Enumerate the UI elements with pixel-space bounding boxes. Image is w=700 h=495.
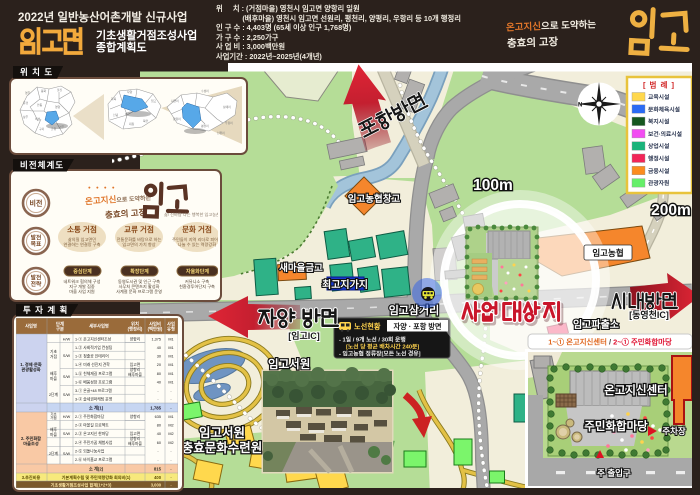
svg-text:양항리: 양항리: [130, 436, 140, 441]
svg-text:주민화합마당: 주민화합마당: [584, 419, 648, 433]
svg-text:봉화: 봉화: [41, 89, 47, 93]
svg-text:1-② 사회적기업 컨설팅: 1-② 사회적기업 컨설팅: [75, 345, 113, 350]
svg-text:배후마을: 배후마을: [128, 372, 142, 377]
svg-text:M1: M1: [168, 415, 173, 419]
svg-text:-: -: [157, 458, 159, 462]
svg-text:635: 635: [155, 415, 161, 419]
svg-text:배후: 배후: [50, 371, 57, 376]
svg-text:임고서원: 임고서원: [268, 357, 310, 371]
svg-text:문화 거점: 문화 거점: [182, 224, 212, 234]
svg-text:자양 · 포항 방면: 자양 · 포항 방면: [393, 322, 441, 331]
svg-text:양항리: 양항리: [173, 117, 181, 121]
svg-text:-: -: [157, 449, 159, 453]
svg-text:노선현황: 노선현황: [354, 322, 381, 331]
svg-text:기초생활거점조성사업 합계(1+2+3): 기초생활거점조성사업 합계(1+2+3): [51, 481, 112, 487]
svg-text:의성: 의성: [35, 117, 41, 121]
svg-text:M2: M2: [168, 441, 173, 445]
svg-text:S/W: S/W: [63, 432, 71, 436]
svg-text:나눌 수 있는 역량강화: 나눌 수 있는 역량강화: [178, 241, 216, 248]
svg-text:40: 40: [157, 346, 161, 350]
svg-text:소 계(1): 소 계(1): [89, 405, 104, 412]
svg-text:2-③ 온고지신 한마당: 2-③ 온고지신 한마당: [75, 431, 109, 436]
svg-text:H/W: H/W: [63, 338, 71, 342]
svg-text:[노선 당 평균 배차시간 240분]: [노선 당 평균 배차시간 240분]: [346, 343, 419, 351]
svg-text:임고농협창고: 임고농협창고: [348, 193, 401, 205]
svg-text:200m: 200m: [651, 202, 691, 219]
svg-text:815: 815: [154, 467, 162, 472]
svg-text:M1: M1: [168, 380, 173, 384]
svg-text:- 1일 / 9개 노선 / 30회 운행: - 1일 / 9개 노선 / 30회 운행: [339, 336, 406, 344]
svg-text:20: 20: [157, 363, 161, 367]
svg-text:상업시설: 상업시설: [648, 142, 669, 150]
svg-text:충효의 고장: 충효의 고장: [105, 207, 147, 220]
svg-text:1-④ 미래 선진지 견학: 1-④ 미래 선진지 견학: [75, 362, 110, 367]
svg-text:상주: 상주: [23, 115, 29, 119]
svg-text:양항리: 양항리: [130, 414, 140, 419]
svg-text:60: 60: [157, 441, 161, 445]
svg-text:-: -: [170, 449, 172, 453]
svg-text:M2: M2: [168, 432, 173, 436]
svg-text:임고: 임고: [151, 99, 157, 103]
svg-text:3-① 온골+48 프로그램: 3-① 온골+48 프로그램: [75, 388, 112, 393]
svg-text:임고면: 임고면: [130, 362, 141, 367]
svg-text:관광자원: 관광자원: [648, 179, 669, 187]
svg-text:온고지신으로 도약하는: 온고지신으로 도약하는: [85, 192, 152, 207]
svg-text:연결하는 연결망 구축: 연결하는 연결망 구축: [63, 241, 100, 248]
svg-text:영양: 영양: [55, 105, 61, 109]
svg-text:30: 30: [157, 355, 161, 359]
svg-text:사계절 문화 프로그램 운영: 사계절 문화 프로그램 운영: [116, 288, 162, 295]
svg-text:-: -: [157, 389, 159, 393]
svg-text:양항리: 양항리: [130, 367, 140, 372]
svg-text:(백만원): (백만원): [148, 326, 163, 333]
svg-text:임고농협: 임고농협: [592, 248, 623, 258]
svg-text:충효문화수련원: 충효문화수련원: [182, 440, 263, 455]
svg-text:M1: M1: [168, 372, 173, 376]
svg-text:금융시설: 금융시설: [648, 167, 669, 175]
svg-text:배후: 배후: [50, 427, 57, 432]
svg-text:자율화단계: 자율화단계: [186, 268, 209, 275]
svg-text:소 계(2): 소 계(2): [89, 466, 104, 473]
svg-text:M1: M1: [168, 363, 173, 367]
svg-text:주차장: 주차장: [662, 426, 686, 436]
svg-text:복지시설: 복지시설: [648, 118, 669, 126]
svg-text:임고파출소: 임고파출소: [573, 318, 619, 331]
svg-text:M1: M1: [168, 355, 173, 359]
svg-text:유형: 유형: [167, 326, 175, 333]
svg-text:2-④ 주민가꿈 채험사업: 2-④ 주민가꿈 채험사업: [75, 440, 113, 445]
svg-text:양항리: 양항리: [130, 337, 140, 342]
svg-text:1-① 온고지신센터조성: 1-① 온고지신센터조성: [75, 337, 112, 342]
svg-text:사업명: 사업명: [25, 323, 37, 330]
svg-text:군위: 군위: [51, 127, 57, 131]
svg-text:덕연리: 덕연리: [171, 99, 179, 103]
svg-text:-: -: [157, 398, 159, 402]
svg-text:안동: 안동: [37, 103, 43, 107]
svg-text:구미: 구미: [39, 127, 45, 131]
svg-text:중심단계: 중심단계: [73, 268, 92, 275]
svg-text:새마을금고: 새마을금고: [279, 262, 323, 274]
svg-text:배후마을: 배후마을: [128, 441, 142, 446]
svg-text:마을: 마을: [50, 432, 57, 437]
svg-text:거점: 거점: [50, 354, 57, 359]
svg-text:주 출입구: 주 출입구: [597, 468, 631, 478]
svg-text:2단계: 2단계: [49, 451, 59, 456]
svg-text:거점: 거점: [50, 415, 56, 420]
svg-text:S/W: S/W: [63, 375, 71, 379]
svg-text:임고면: 임고면: [130, 431, 141, 436]
svg-text:-: -: [170, 389, 172, 393]
svg-text:80: 80: [157, 424, 161, 428]
svg-text:삼매리: 삼매리: [223, 105, 231, 109]
svg-text:M2: M2: [168, 424, 173, 428]
svg-text:소통 거점: 소통 거점: [67, 224, 97, 234]
svg-text:전략: 전략: [31, 280, 42, 288]
svg-text:교류 거점: 교류 거점: [124, 224, 154, 234]
svg-text:400: 400: [154, 475, 162, 480]
svg-text:80: 80: [157, 372, 161, 376]
svg-text:우항리: 우항리: [225, 121, 233, 125]
svg-text:(행정리): (행정리): [128, 326, 143, 333]
svg-text:문화체육시설: 문화체육시설: [648, 105, 680, 113]
svg-text:수성리: 수성리: [201, 89, 209, 93]
svg-text:삶! 신바람 나는 행복한 임고농촌愛로 디자인: 삶! 신바람 나는 행복한 임고농촌愛로 디자인: [164, 211, 218, 218]
svg-text:관광활성화: 관광활성화: [21, 366, 40, 373]
svg-text:영주: 영주: [25, 91, 31, 95]
svg-text:마을조성: 마을조성: [23, 440, 39, 447]
svg-text:100m: 100m: [473, 177, 513, 194]
svg-text:2-⑤ 되돌나눔사업: 2-⑤ 되돌나눔사업: [75, 448, 105, 453]
svg-text:[임고IC]: [임고IC]: [288, 330, 320, 341]
svg-text:대창: 대창: [129, 122, 135, 126]
svg-text:3,000: 3,000: [151, 482, 162, 487]
svg-text:임고면의 가치 향상: 임고면의 가치 향상: [122, 241, 155, 248]
svg-text:M1: M1: [168, 338, 173, 342]
svg-text:기초: 기초: [50, 349, 57, 354]
svg-text:신녕: 신녕: [113, 113, 119, 117]
svg-text:-: -: [170, 458, 172, 462]
svg-text:1,375: 1,375: [151, 338, 161, 342]
svg-text:화북: 화북: [111, 97, 117, 101]
svg-text:S/W: S/W: [63, 393, 71, 397]
svg-text:-: -: [170, 398, 172, 402]
svg-text:3-② 슬세권마케팅 운영: 3-② 슬세권마케팅 운영: [75, 397, 113, 402]
svg-text:1-⑤ 친체재길 프로그램: 1-⑤ 친체재길 프로그램: [75, 371, 113, 376]
svg-text:마을 사업 지원: 마을 사업 지원: [69, 288, 95, 295]
svg-text:1-⑥ 배움성장 프로그램: 1-⑥ 배움성장 프로그램: [75, 379, 113, 384]
svg-text:친환경투어단지 구축: 친환경투어단지 구축: [179, 283, 215, 290]
svg-text:행정시설: 행정시설: [648, 155, 669, 163]
svg-text:울진: 울진: [57, 88, 63, 92]
svg-text:온고지신센터: 온고지신센터: [604, 383, 667, 397]
svg-text:[동영천IC]: [동영천IC]: [629, 309, 669, 320]
svg-text:임고서원: 임고서원: [199, 425, 245, 440]
svg-text:기본계획수립 및 주민역량강화 회의비(1): 기본계획수립 및 주민역량강화 회의비(1): [62, 474, 131, 480]
svg-text:H/W: H/W: [63, 415, 71, 419]
svg-text:2-② 마을길 프로젝트: 2-② 마을길 프로젝트: [75, 423, 109, 428]
svg-text:2-⑥ 바이홈교 프로그램: 2-⑥ 바이홈교 프로그램: [75, 457, 113, 462]
svg-text:발전: 발전: [31, 274, 42, 282]
svg-text:- 임고농협 정류장[모든 노선 경유]: - 임고농협 정류장[모든 노선 경유]: [339, 350, 421, 358]
svg-text:[ 범 례 ]: [ 범 례 ]: [643, 80, 675, 90]
svg-text:세부사업명: 세부사업명: [89, 323, 109, 330]
svg-text:2-① 주민화합마당: 2-① 주민화합마당: [75, 414, 105, 419]
svg-text:● ● ● ●: ● ● ● ●: [88, 185, 117, 190]
svg-text:북안: 북안: [143, 119, 149, 123]
svg-text:보건·의료시설: 보건·의료시설: [648, 130, 682, 138]
svg-text:구분: 구분: [56, 326, 64, 333]
svg-text:S/W: S/W: [63, 354, 71, 358]
svg-text:M1: M1: [168, 346, 173, 350]
svg-text:목표: 목표: [31, 240, 42, 248]
svg-text:확장단계: 확장단계: [130, 268, 149, 275]
svg-text:2단계: 2단계: [49, 392, 59, 397]
svg-text:S/W: S/W: [63, 452, 71, 456]
svg-text:1~① 온고지신센터 / 2~① 주민화합마당: 1~① 온고지신센터 / 2~① 주민화합마당: [548, 338, 672, 347]
svg-text:1,785: 1,785: [150, 406, 161, 411]
svg-text:경주: 경주: [59, 125, 65, 129]
svg-text:교육시설: 교육시설: [648, 93, 669, 101]
svg-text:40: 40: [157, 380, 161, 384]
svg-text:선원리: 선원리: [217, 131, 225, 135]
svg-text:마을: 마을: [50, 376, 57, 381]
svg-text:1-③ 청출공 인테리어: 1-③ 청출공 인테리어: [75, 354, 109, 359]
svg-text:비전: 비전: [30, 199, 43, 208]
svg-text:최고지가지: 최고지가지: [322, 278, 368, 291]
svg-text:문경: 문경: [23, 101, 29, 105]
svg-text:N: N: [578, 103, 582, 109]
svg-text:40: 40: [157, 432, 161, 436]
svg-text:평천리: 평천리: [201, 124, 209, 128]
svg-text:발전: 발전: [31, 234, 42, 242]
svg-text:자양: 자양: [127, 90, 133, 94]
svg-text:3.추진비용: 3.추진비용: [22, 474, 41, 480]
